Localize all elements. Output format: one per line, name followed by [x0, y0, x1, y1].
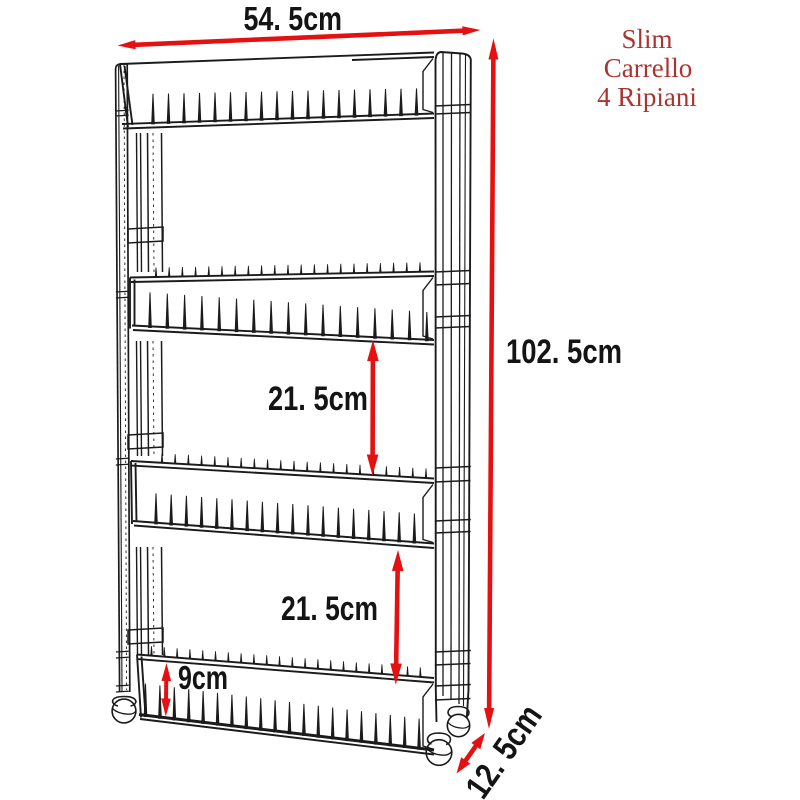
svg-text:9cm: 9cm: [178, 659, 228, 696]
svg-text:102. 5cm: 102. 5cm: [506, 333, 622, 371]
svg-text:21. 5cm: 21. 5cm: [268, 380, 368, 418]
svg-text:Slim: Slim: [621, 24, 672, 54]
svg-text:21. 5cm: 21. 5cm: [281, 590, 378, 628]
svg-text:Carrello: Carrello: [604, 53, 692, 83]
svg-text:4 Ripiani: 4 Ripiani: [597, 82, 697, 112]
svg-text:54. 5cm: 54. 5cm: [244, 0, 343, 37]
